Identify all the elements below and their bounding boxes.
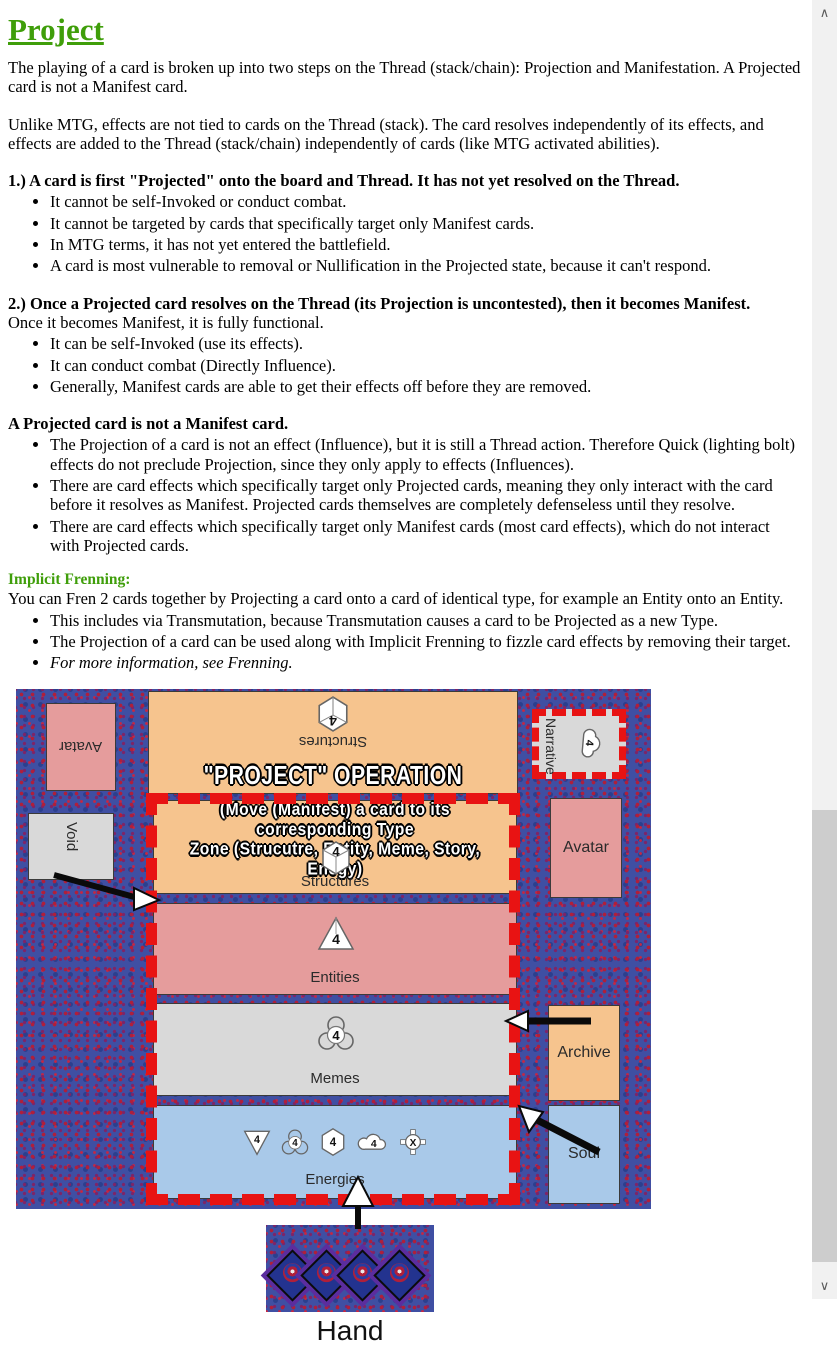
list-item: A card is most vulnerable to removal or … [50, 256, 802, 275]
hand-label: Hand [266, 1315, 434, 1347]
list-item: It cannot be targeted by cards that spec… [50, 214, 802, 233]
zone-label: Entities [154, 969, 516, 986]
list-item: The Projection of a card can be used alo… [50, 632, 802, 651]
chevron-down-icon: ∨ [820, 1279, 830, 1294]
list-item: There are card effects which specificall… [50, 476, 802, 515]
card-label: Archive [557, 1044, 610, 1062]
section-3-heading: A Projected card is not a Manifest card. [8, 414, 802, 433]
list-item: It cannot be self-Invoked or conduct com… [50, 192, 802, 211]
board-diagram: Structures 4 "PROJECT" OPERATION Avatar … [16, 689, 676, 1349]
scroll-up-button[interactable]: ∧ [812, 0, 837, 26]
project-operation-title: "PROJECT" OPERATION [164, 760, 503, 790]
list-item: It can conduct combat (Directly Influenc… [50, 356, 802, 375]
list-item-frenning-link[interactable]: For more information, see Frenning. [50, 653, 802, 672]
svg-text:4: 4 [330, 1137, 337, 1149]
player-avatar-card: Avatar [550, 798, 622, 898]
list-item: Generally, Manifest cards are able to ge… [50, 377, 802, 396]
vertical-scrollbar[interactable]: ∧ ∨ [812, 0, 837, 1299]
svg-text:4: 4 [332, 844, 340, 859]
soul-card: Soul [548, 1105, 620, 1204]
svg-text:4: 4 [332, 1028, 340, 1043]
hand-area [266, 1225, 434, 1312]
card-back [373, 1249, 425, 1301]
opponent-structures-zone: Structures 4 "PROJECT" OPERATION [148, 691, 518, 794]
section-1-list: It cannot be self-Invoked or conduct com… [8, 192, 802, 275]
intro-paragraph-2: Unlike MTG, effects are not tied to card… [8, 115, 802, 154]
energy-triangle-icon: 4 [243, 1128, 271, 1156]
zone-label: Memes [154, 1070, 516, 1087]
list-item: The Projection of a card is not an effec… [50, 435, 802, 474]
cloud-counter-icon: 4 [572, 724, 609, 761]
zone-label: Structures [154, 873, 516, 890]
hexagon-counter-icon: 4 [315, 696, 351, 732]
chevron-up-icon: ∧ [820, 6, 830, 21]
narrative-card: Narrative 4 [532, 709, 626, 779]
energies-zone: 4 4 4 4 [153, 1105, 517, 1199]
section-2-list: It can be self-Invoked (use its effects)… [8, 334, 802, 396]
hexagon-counter-icon: 4 [319, 841, 353, 875]
section-2-lead: Once it becomes Manifest, it is fully fu… [8, 313, 802, 332]
energy-cloud-icon: 4 [357, 1128, 389, 1156]
scrollbar-thumb[interactable] [812, 810, 837, 1262]
svg-text:4: 4 [292, 1138, 298, 1149]
project-note-line1: (Move (Manifest) a card to its correspon… [220, 800, 450, 839]
list-item: In MTG terms, it has not yet entered the… [50, 235, 802, 254]
energy-hexagon-icon: 4 [319, 1128, 347, 1156]
card-label: Void [63, 822, 80, 851]
svg-text:X: X [410, 1137, 417, 1148]
energy-crosshair-icon: X [399, 1128, 427, 1156]
section-1-heading: 1.) A card is first "Projected" onto the… [8, 171, 802, 190]
zone-label: Energies [154, 1171, 516, 1188]
list-item: There are card effects which specificall… [50, 517, 802, 556]
intro-paragraph-1: The playing of a card is broken up into … [8, 58, 802, 97]
frenning-list: This includes via Transmutation, because… [8, 611, 802, 673]
svg-text:4: 4 [254, 1133, 260, 1145]
player-structures-zone: (Move (Manifest) a card to its correspon… [153, 800, 517, 894]
entities-zone: 4 Entities [153, 903, 517, 995]
frenning-heading: Implicit Frenning: [8, 571, 802, 589]
article: Project The playing of a card is broken … [0, 0, 802, 1349]
section-2-heading: 2.) Once a Projected card resolves on th… [8, 294, 802, 313]
list-item: This includes via Transmutation, because… [50, 611, 802, 630]
zone-label: Structures [299, 733, 367, 750]
card-label: Avatar [59, 738, 102, 755]
list-item: It can be self-Invoked (use its effects)… [50, 334, 802, 353]
biohazard-counter-icon: 4 [316, 1014, 356, 1054]
scroll-down-button[interactable]: ∨ [812, 1273, 837, 1299]
svg-text:4: 4 [371, 1138, 377, 1149]
frenning-lead: You can Fren 2 cards together by Project… [8, 589, 802, 608]
card-label: Narrative [543, 718, 559, 775]
svg-text:4: 4 [329, 713, 337, 728]
card-label: Soul [568, 1145, 600, 1163]
energy-biohazard-icon: 4 [281, 1128, 309, 1156]
memes-zone: 4 Memes [153, 1003, 517, 1096]
svg-text:4: 4 [332, 931, 340, 947]
section-3-list: The Projection of a card is not an effec… [8, 435, 802, 555]
card-label: Avatar [563, 839, 609, 857]
void-card: Void [28, 813, 114, 880]
archive-card: Archive [548, 1005, 620, 1101]
page-title[interactable]: Project [8, 12, 802, 48]
opponent-avatar-card: Avatar [46, 703, 116, 791]
triangle-counter-icon: 4 [317, 916, 355, 952]
